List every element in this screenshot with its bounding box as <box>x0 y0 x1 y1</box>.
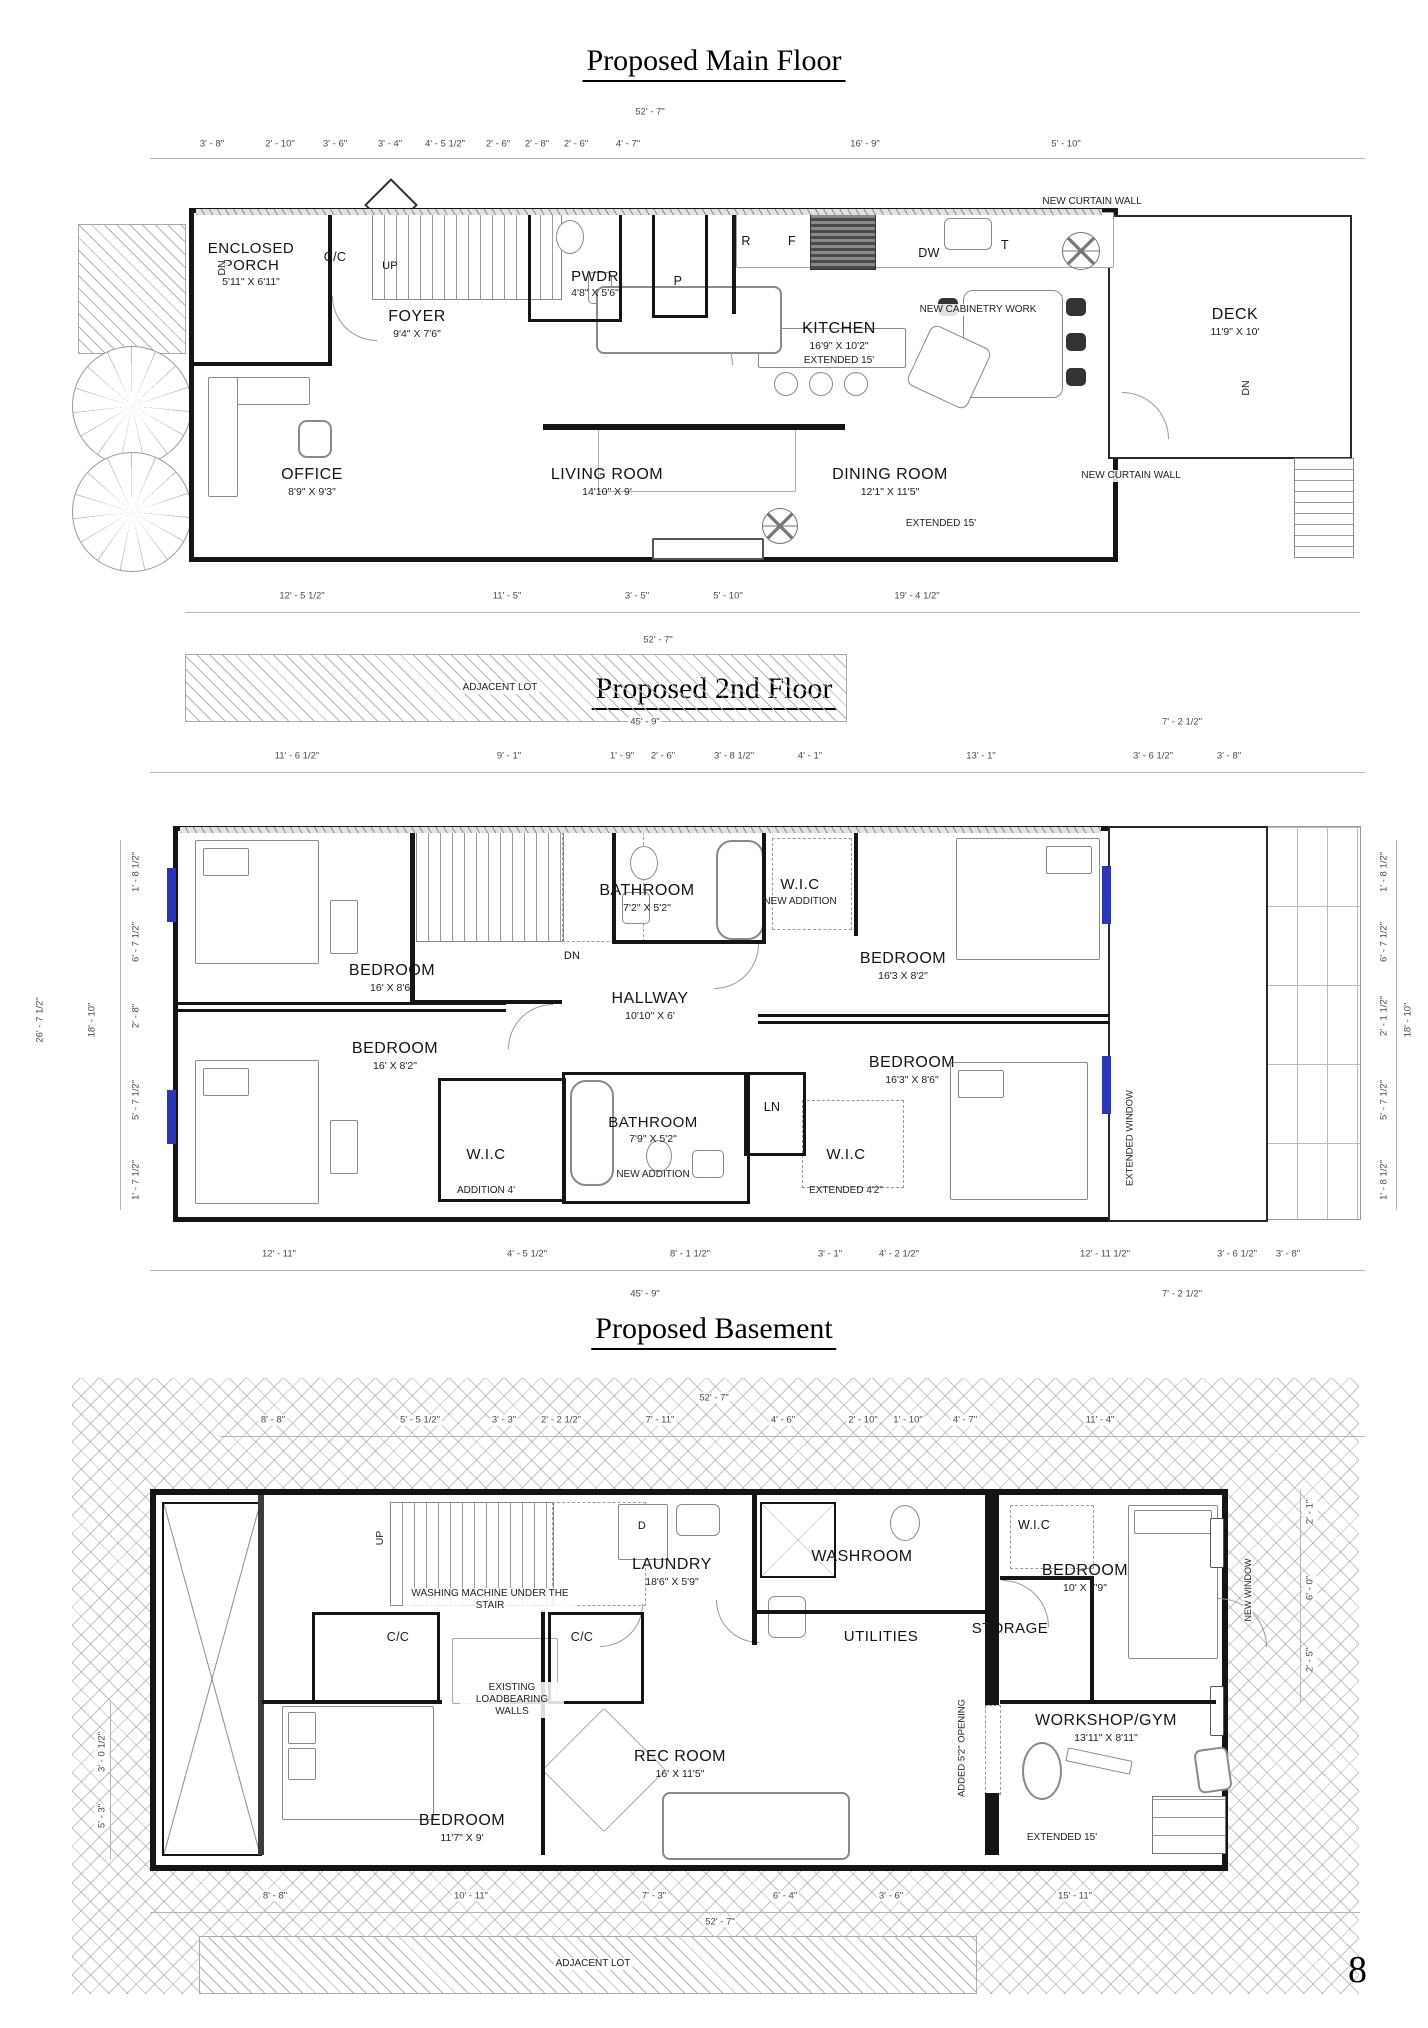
dimension-line <box>220 1436 1365 1437</box>
dimension-text: 3' - 6" <box>321 139 349 150</box>
wall <box>758 1014 1110 1017</box>
dimension-line <box>150 772 1365 773</box>
room-label-bedroom: BEDROOM 16'3 X 8'2" <box>860 950 946 982</box>
dimension-text: 1' - 8 1/2" <box>1377 1160 1392 1200</box>
toilet-icon <box>630 846 658 880</box>
porch-steps-hatch <box>78 224 186 354</box>
room-name: OFFICE <box>281 466 343 483</box>
room-label-wic: W.I.C NEW ADDITION <box>763 876 836 907</box>
window-band <box>196 209 1102 215</box>
room-size: 11'9" X 10' <box>1211 326 1260 338</box>
window-grid <box>1266 826 1361 1220</box>
kitchen-sink-icon <box>944 218 992 250</box>
note-washing-machine: WASHING MACHINE UNDER THE STAIR <box>403 1588 577 1612</box>
wall <box>1000 1700 1216 1704</box>
room-name: DECK <box>1212 306 1258 323</box>
stairs-down-label: DN <box>564 950 580 962</box>
dimension-text: 5' - 10" <box>1049 139 1082 150</box>
dimension-line <box>150 158 1365 159</box>
trash-label: T <box>1001 238 1009 252</box>
media-console <box>652 538 764 560</box>
chair-icon <box>1066 368 1086 386</box>
room-name: BEDROOM <box>352 1040 438 1057</box>
dimension-text: 1' - 7 1/2" <box>129 1160 144 1200</box>
dimension-text: 5' - 5 1/2" <box>398 1415 442 1426</box>
dimension-text: 6' - 7 1/2" <box>129 922 144 962</box>
closet-label: C/C <box>387 1630 409 1644</box>
room-label-hallway: HALLWAY 10'10" X 6' <box>612 990 689 1022</box>
office-desk <box>208 377 238 497</box>
wall <box>752 1495 757 1645</box>
room-name: BATHROOM <box>599 882 694 899</box>
new-window-label: NEW WINDOW <box>1243 1559 1253 1622</box>
dryer-label: D <box>638 1520 646 1532</box>
callout-new-curtain-wall: NEW CURTAIN WALL <box>1079 470 1182 482</box>
dimension-text: 13' - 1" <box>964 751 997 762</box>
room-size: 16' X 11'5" <box>634 1768 726 1780</box>
closet-dashes <box>1010 1505 1094 1569</box>
room-note: NEW ADDITION <box>763 896 836 907</box>
existing-wall <box>258 1495 264 1855</box>
bathtub-icon <box>716 840 764 940</box>
room-size: 11'7" X 9' <box>419 1832 505 1844</box>
room-size: 14'10" X 9' <box>551 486 663 498</box>
dimension-text: 26' - 7 1/2" <box>33 997 48 1042</box>
extended-window-label: EXTENDED WINDOW <box>1125 1090 1136 1186</box>
dimension-line <box>150 1912 1360 1913</box>
dimension-text: 7' - 3" <box>640 1891 668 1902</box>
dimension-text: 3' - 5" <box>623 591 651 602</box>
window-marker <box>1210 1518 1224 1568</box>
stairs-down-label: DN <box>1240 380 1252 395</box>
window-marker <box>1102 1056 1111 1114</box>
dimension-text: 6' - 0" <box>1303 1576 1318 1600</box>
wall <box>541 1610 545 1855</box>
room-name: KITCHEN <box>802 320 876 337</box>
dimension-text: 1' - 8 1/2" <box>129 852 144 892</box>
closet-walls <box>312 1612 440 1704</box>
dimension-text: 9' - 1" <box>495 751 523 762</box>
room-size: 16' X 8'2" <box>352 1060 438 1072</box>
closet-label: C/C <box>324 250 346 264</box>
linen-walls <box>744 1072 806 1156</box>
dimension-text: 52' - 7" <box>703 1917 736 1928</box>
wall <box>758 1021 1110 1024</box>
pillow <box>1046 846 1092 874</box>
main-floor-title: Proposed Main Floor <box>583 44 846 82</box>
ceiling-fan-icon <box>762 508 798 544</box>
shower <box>760 1502 836 1578</box>
window-marker <box>1210 1686 1224 1736</box>
office-chair <box>298 420 332 458</box>
room-name: BEDROOM <box>349 962 435 979</box>
dimension-text: 4' - 2 1/2" <box>877 1249 921 1260</box>
room-name: PORCH <box>223 257 280 274</box>
dimension-line <box>1300 1490 1301 1702</box>
dimension-text: 7' - 11" <box>644 1415 677 1426</box>
room-name: ENCLOSED <box>208 240 295 257</box>
dimension-text: 7' - 2 1/2" <box>1160 1289 1204 1300</box>
gym-equipment <box>1022 1742 1062 1800</box>
dimension-text: 1' - 10" <box>891 1415 924 1426</box>
dimension-text: 10' - 11" <box>452 1891 490 1902</box>
dimension-text: 16' - 9" <box>848 139 881 150</box>
room-label-washroom: WASHROOM <box>811 1548 912 1566</box>
laundry-sink-icon <box>676 1504 720 1536</box>
stairs-up-label: UP <box>374 1531 386 1546</box>
room-label-deck: DECK 11'9" X 10' <box>1211 306 1260 338</box>
room-label-bedroom: BEDROOM 16' X 8'6" <box>349 962 435 994</box>
dimension-text: 3' - 4" <box>376 139 404 150</box>
dimension-text: 12' - 11 1/2" <box>1078 1249 1132 1260</box>
dimension-text: 4' - 6" <box>769 1415 797 1426</box>
dimension-text: 8' - 8" <box>261 1891 289 1902</box>
room-label-bathroom: BATHROOM 7'9" X 5'2" NEW ADDITION <box>608 1114 698 1180</box>
basement-title: Proposed Basement <box>591 1312 836 1350</box>
powder-room-walls <box>528 208 622 322</box>
room-size: 7'2" X 5'2" <box>599 902 694 914</box>
dimension-text: 4' - 1" <box>796 751 824 762</box>
dimension-text: 19' - 4 1/2" <box>892 591 941 602</box>
room-label-wic: W.I.C EXTENDED 4'2" <box>809 1146 883 1196</box>
window-marker <box>167 1090 176 1144</box>
dimension-text: 1' - 8 1/2" <box>1377 852 1392 892</box>
pillow <box>1134 1510 1212 1534</box>
dimension-text: 4' - 7" <box>951 1415 979 1426</box>
wall <box>854 832 858 936</box>
room-size: 4'8" X 5'6" <box>571 287 619 299</box>
note-extended: EXTENDED 15' <box>904 518 978 530</box>
ceiling-fan-icon <box>1062 232 1100 270</box>
dimension-text: 3' - 6" <box>877 1891 905 1902</box>
room-name: W.I.C <box>466 1146 505 1163</box>
window-marker <box>167 868 176 922</box>
cold-room <box>162 1502 262 1856</box>
room-label-bathroom: BATHROOM 7'2" X 5'2" <box>599 882 694 914</box>
room-name: HALLWAY <box>612 990 689 1007</box>
dimension-text: 45' - 9" <box>628 1289 661 1300</box>
dimension-text: 2' - 1 1/2" <box>1377 996 1392 1036</box>
wall <box>755 1610 985 1614</box>
room-note: NEW ADDITION <box>608 1169 698 1180</box>
dimension-text: 6' - 7 1/2" <box>1377 922 1392 962</box>
dimension-text: 2' - 6" <box>562 139 590 150</box>
dimension-text: 2' - 6" <box>484 139 512 150</box>
room-name: REC ROOM <box>634 1748 726 1765</box>
dimension-text: 52' - 7" <box>633 107 666 118</box>
room-name: DINING ROOM <box>832 466 948 483</box>
callout-new-curtain-wall: NEW CURTAIN WALL <box>1040 196 1143 208</box>
dimension-text: 3' - 6 1/2" <box>1131 751 1175 762</box>
adjacent-lot-label: ADJACENT LOT <box>461 682 540 694</box>
room-name: BEDROOM <box>869 1054 955 1071</box>
dimension-text: 4' - 7" <box>614 139 642 150</box>
dimension-text: 2' - 5" <box>1303 1648 1318 1672</box>
pantry-walls <box>652 208 708 318</box>
room-label-pwdr: PWDR 4'8" X 5'6" <box>571 268 619 299</box>
thick-wall <box>985 1793 999 1855</box>
room-size: 5'11" X 6'11" <box>208 276 295 288</box>
room-size: 12'1" X 11'5" <box>832 486 948 498</box>
wall <box>328 208 332 366</box>
dimension-text: 52' - 7" <box>641 635 674 646</box>
dimension-text: 2' - 10" <box>846 1415 879 1426</box>
pillow <box>203 1068 249 1096</box>
closet-label: C/C <box>571 1630 593 1644</box>
spiral-stair-icon <box>72 452 192 572</box>
room-name: PWDR <box>571 268 619 285</box>
dimension-text: 2' - 8" <box>523 139 551 150</box>
dimension-text: 11' - 4" <box>1084 1415 1117 1426</box>
dimension-text: 12' - 5 1/2" <box>277 591 326 602</box>
dimension-text: 2' - 10" <box>263 139 296 150</box>
dimension-text: 3' - 1" <box>816 1249 844 1260</box>
window-band <box>180 827 1101 833</box>
dimension-text: 52' - 7" <box>697 1393 730 1404</box>
room-label-wic: W.I.C <box>1018 1518 1050 1532</box>
stairs-up-label: UP <box>382 260 398 272</box>
room-size: 16'3 X 8'2" <box>860 970 946 982</box>
window-marker <box>1102 866 1111 924</box>
room-name: BEDROOM <box>419 1812 505 1829</box>
dimension-text: 8' - 8" <box>259 1415 287 1426</box>
sofa <box>662 1792 850 1860</box>
pantry-label: P <box>674 274 683 288</box>
dimension-text: 15' - 11" <box>1056 1891 1094 1902</box>
room-name: BEDROOM <box>860 950 946 967</box>
chair-icon <box>1066 298 1086 316</box>
dimension-text: 8' - 1 1/2" <box>668 1249 712 1260</box>
deck-stairs <box>1294 458 1354 558</box>
dimension-text: 12' - 11" <box>260 1249 298 1260</box>
freezer-label: F <box>788 234 796 248</box>
dimension-line <box>150 1270 1365 1271</box>
room-name: FOYER <box>388 308 446 325</box>
pillow <box>288 1712 316 1744</box>
room-size: 18'6" X 5'9" <box>632 1576 712 1588</box>
added-opening-dashes <box>985 1705 1001 1795</box>
wall <box>616 940 764 944</box>
room-label-wic: W.I.C ADDITION 4' <box>457 1146 515 1196</box>
adjacent-lot-label: ADJACENT LOT <box>554 1958 633 1970</box>
dimension-text: 5' - 7 1/2" <box>129 1080 144 1120</box>
pillow <box>958 1070 1004 1098</box>
dimension-text: 3' - 8" <box>1274 1249 1302 1260</box>
room-size: 8'9" X 9'3" <box>281 486 343 498</box>
room-size: 7'9" X 5'2" <box>608 1133 698 1145</box>
room-label-rec: REC ROOM 16' X 11'5" <box>634 1748 726 1780</box>
room-label-living: LIVING ROOM 14'10" X 9' <box>551 466 663 498</box>
room-note: EXTENDED 15' <box>802 355 876 366</box>
room-name: LAUNDRY <box>632 1556 712 1573</box>
dimension-text: 4' - 5 1/2" <box>505 1249 549 1260</box>
room-label-laundry: LAUNDRY 18'6" X 5'9" <box>632 1556 712 1588</box>
shelving <box>1152 1796 1226 1854</box>
dresser <box>330 1120 358 1174</box>
dishwasher-label: DW <box>918 246 939 260</box>
room-size: 9'4" X 7'6" <box>388 328 446 340</box>
dresser <box>330 900 358 954</box>
pillow <box>203 848 249 876</box>
chair-icon <box>1193 1746 1233 1794</box>
sink-icon <box>768 1596 806 1638</box>
dimension-text: 18' - 10" <box>1401 1003 1416 1038</box>
room-name: WORKSHOP/GYM <box>1035 1712 1177 1729</box>
toilet-icon <box>890 1505 920 1541</box>
dimension-text: 5' - 10" <box>711 591 744 602</box>
stairs-down <box>416 832 564 942</box>
dimension-text: 11' - 6 1/2" <box>273 751 322 762</box>
wall <box>178 1002 506 1005</box>
page-number: 8 <box>1348 1948 1367 1992</box>
range-icon <box>810 210 876 270</box>
callout-new-cabinetry: NEW CABINETRY WORK <box>918 304 1039 316</box>
dimension-text: 3' - 8 1/2" <box>712 751 756 762</box>
room-name: LIVING ROOM <box>551 466 663 483</box>
dimension-text: 2' - 2 1/2" <box>539 1415 583 1426</box>
room-size: 16' X 8'6" <box>349 982 435 994</box>
dimension-text: 3' - 8" <box>1215 751 1243 762</box>
room-name: W.I.C <box>780 876 819 893</box>
dimension-line <box>185 612 1360 613</box>
dimension-text: 3' - 8" <box>198 139 226 150</box>
stairs-down-label: DN <box>216 260 228 275</box>
added-opening-label: ADDED 5'2" OPENING <box>957 1699 968 1797</box>
room-label-bedroom: BEDROOM 11'7" X 9' <box>419 1812 505 1844</box>
wall <box>178 1009 506 1012</box>
dimension-text: 5' - 3" <box>95 1804 110 1828</box>
dimension-text: 1' - 9" <box>608 751 636 762</box>
room-label-utilities: UTILITIES <box>844 1628 919 1645</box>
room-size: 16'9" X 10'2" <box>802 340 876 352</box>
room-size: 10'10" X 6' <box>612 1010 689 1022</box>
room-label-bedroom: BEDROOM 10' X 7'9" <box>1042 1562 1128 1594</box>
floor-plan-sheet: Proposed Main Floor 52' - 7" 3' - 8"2' -… <box>0 0 1428 2028</box>
stool-icon <box>809 372 833 396</box>
dimension-text: 18' - 10" <box>85 1003 100 1038</box>
room-size: 13'11" X 8'11" <box>1035 1732 1177 1744</box>
chair-icon <box>1066 333 1086 351</box>
stool-icon <box>774 372 798 396</box>
dimension-text: 11' - 5" <box>491 591 524 602</box>
wall <box>732 208 736 314</box>
room-label-foyer: FOYER 9'4" X 7'6" <box>388 308 446 340</box>
dryer <box>618 1504 668 1560</box>
spiral-stair-icon <box>72 346 192 466</box>
room-label-dining: DINING ROOM 12'1" X 11'5" <box>832 466 948 498</box>
dimension-line <box>120 840 121 1210</box>
dimension-text: 45' - 9" <box>628 717 661 728</box>
room-label-workshop: WORKSHOP/GYM 13'11" X 8'11" <box>1035 1712 1177 1744</box>
dimension-text: 3' - 6 1/2" <box>1215 1249 1259 1260</box>
dimension-text: 3' - 0 1/2" <box>95 1732 110 1772</box>
note-existing-walls: EXISTING LOADBEARING WALLS <box>460 1682 564 1718</box>
half-wall <box>543 424 845 430</box>
dimension-text: 4' - 5 1/2" <box>423 139 467 150</box>
dimension-line <box>1396 840 1397 1210</box>
room-label-bedroom: BEDROOM 16'3" X 8'6" <box>869 1054 955 1086</box>
dimension-text: 2' - 1" <box>1303 1500 1318 1524</box>
dimension-text: 2' - 8" <box>129 1004 144 1028</box>
pillow <box>288 1748 316 1780</box>
note-extended: EXTENDED 15' <box>1025 1832 1099 1844</box>
thick-wall <box>985 1495 999 1705</box>
wall <box>1090 1576 1094 1702</box>
dimension-text: 5' - 7 1/2" <box>1377 1080 1392 1120</box>
room-name: BEDROOM <box>1042 1562 1128 1579</box>
dimension-line <box>110 1700 111 1860</box>
room-note: EXTENDED 4'2" <box>809 1185 883 1196</box>
room-label-bedroom: BEDROOM 16' X 8'2" <box>352 1040 438 1072</box>
room-label-kitchen: KITCHEN 16'9" X 10'2" EXTENDED 15' <box>802 320 876 366</box>
linen-label: LN <box>764 1100 781 1114</box>
fridge-label: R <box>741 234 750 248</box>
room-name: BATHROOM <box>608 1114 698 1131</box>
room-label-office: OFFICE 8'9" X 9'3" <box>281 466 343 498</box>
room-note: ADDITION 4' <box>457 1185 515 1196</box>
dimension-text: 3' - 3" <box>490 1415 518 1426</box>
room-name: W.I.C <box>826 1146 865 1163</box>
room-label-storage: STORAGE <box>972 1620 1049 1637</box>
room-size: 16'3" X 8'6" <box>869 1074 955 1086</box>
wall <box>189 362 332 366</box>
stool-icon <box>844 372 868 396</box>
dimension-text: 7' - 2 1/2" <box>1160 717 1204 728</box>
dimension-text: 6' - 4" <box>771 1891 799 1902</box>
dimension-text: 2' - 6" <box>649 751 677 762</box>
room-size: 10' X 7'9" <box>1042 1582 1128 1594</box>
